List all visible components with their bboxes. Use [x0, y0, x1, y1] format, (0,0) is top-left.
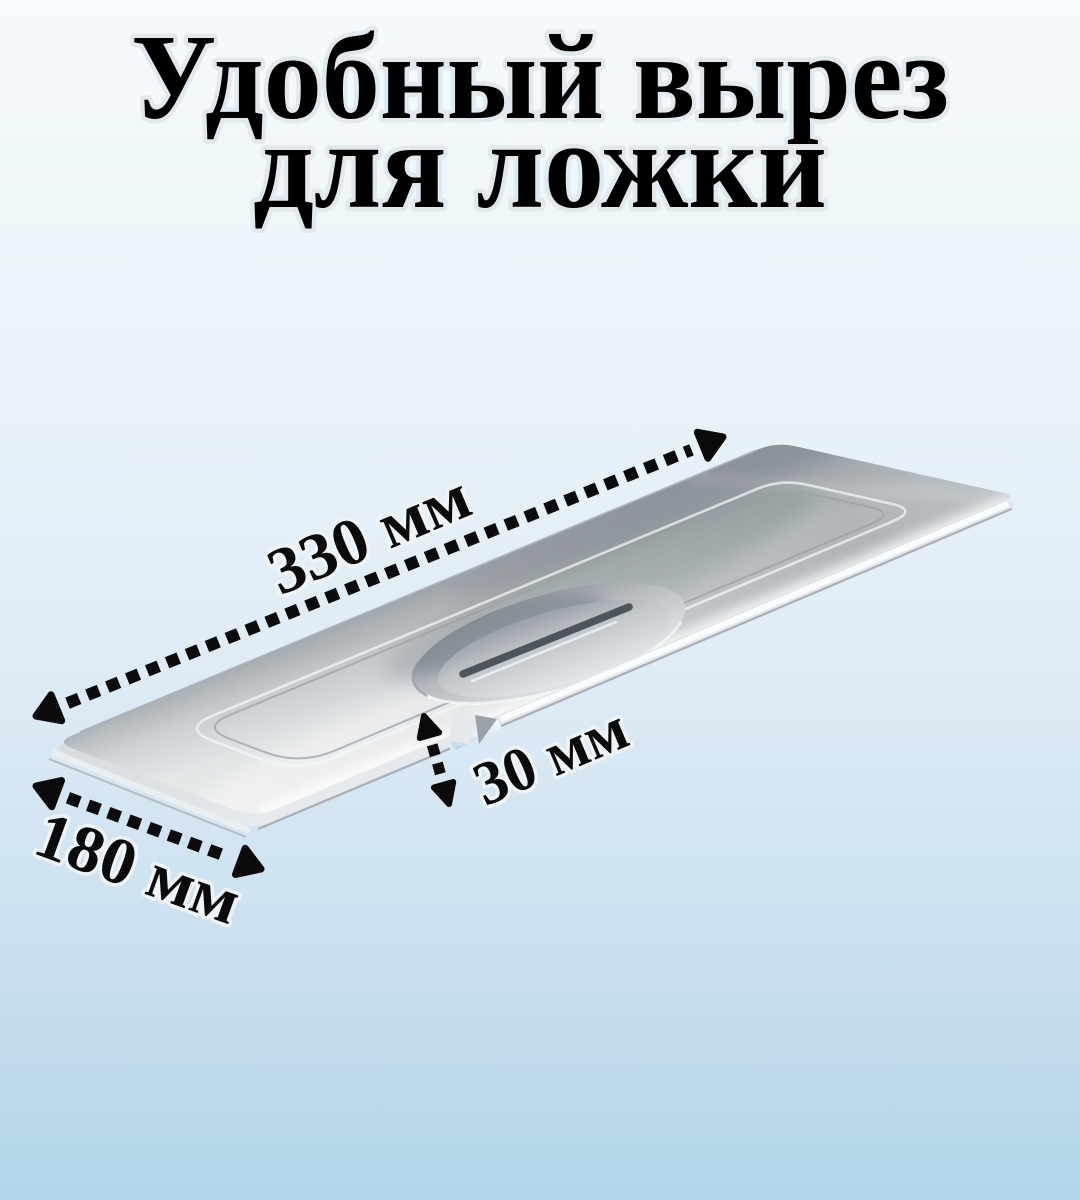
svg-text:для ложки: для ложки — [253, 97, 827, 234]
